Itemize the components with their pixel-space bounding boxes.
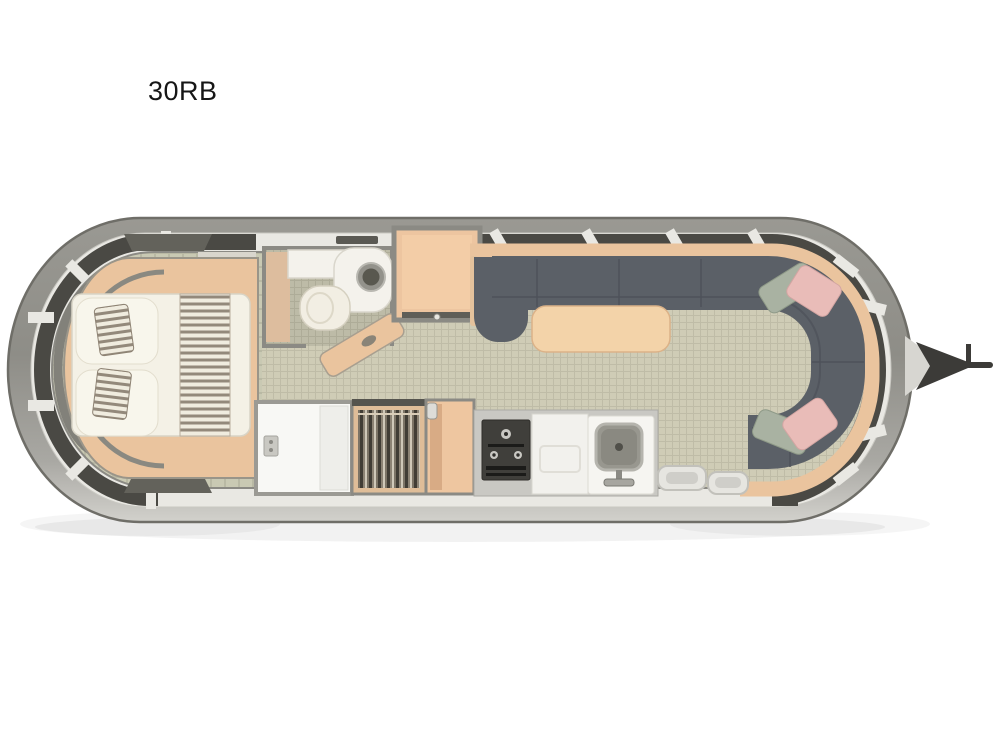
hitch — [905, 336, 993, 396]
overhead-vent-front-top — [124, 234, 212, 251]
sink-drain — [615, 443, 623, 451]
hitch-coupler — [987, 362, 993, 368]
roof-vent — [336, 236, 378, 244]
pantry-latch — [427, 403, 437, 419]
shower-bench — [320, 406, 348, 490]
hanging-clothes — [358, 410, 420, 488]
shower-control — [264, 436, 278, 456]
pantry — [426, 400, 474, 494]
overhead-vent-front-bottom — [124, 477, 212, 493]
bed-pillow-striped — [94, 304, 134, 356]
bed-runner — [180, 294, 230, 436]
hitch-jack — [966, 344, 971, 364]
kitchen — [474, 410, 658, 496]
wardrobe — [394, 228, 480, 320]
shower — [256, 402, 352, 494]
wardrobe-latch — [434, 314, 440, 320]
bed-pillow-striped — [92, 368, 132, 420]
sofa-arm — [474, 257, 528, 342]
hanging-closet — [352, 399, 426, 494]
floorplan-rendering — [0, 0, 1000, 750]
page: 30RB — [0, 0, 1000, 750]
bathroom-cabinet — [266, 252, 290, 342]
dinette-table — [532, 306, 670, 352]
